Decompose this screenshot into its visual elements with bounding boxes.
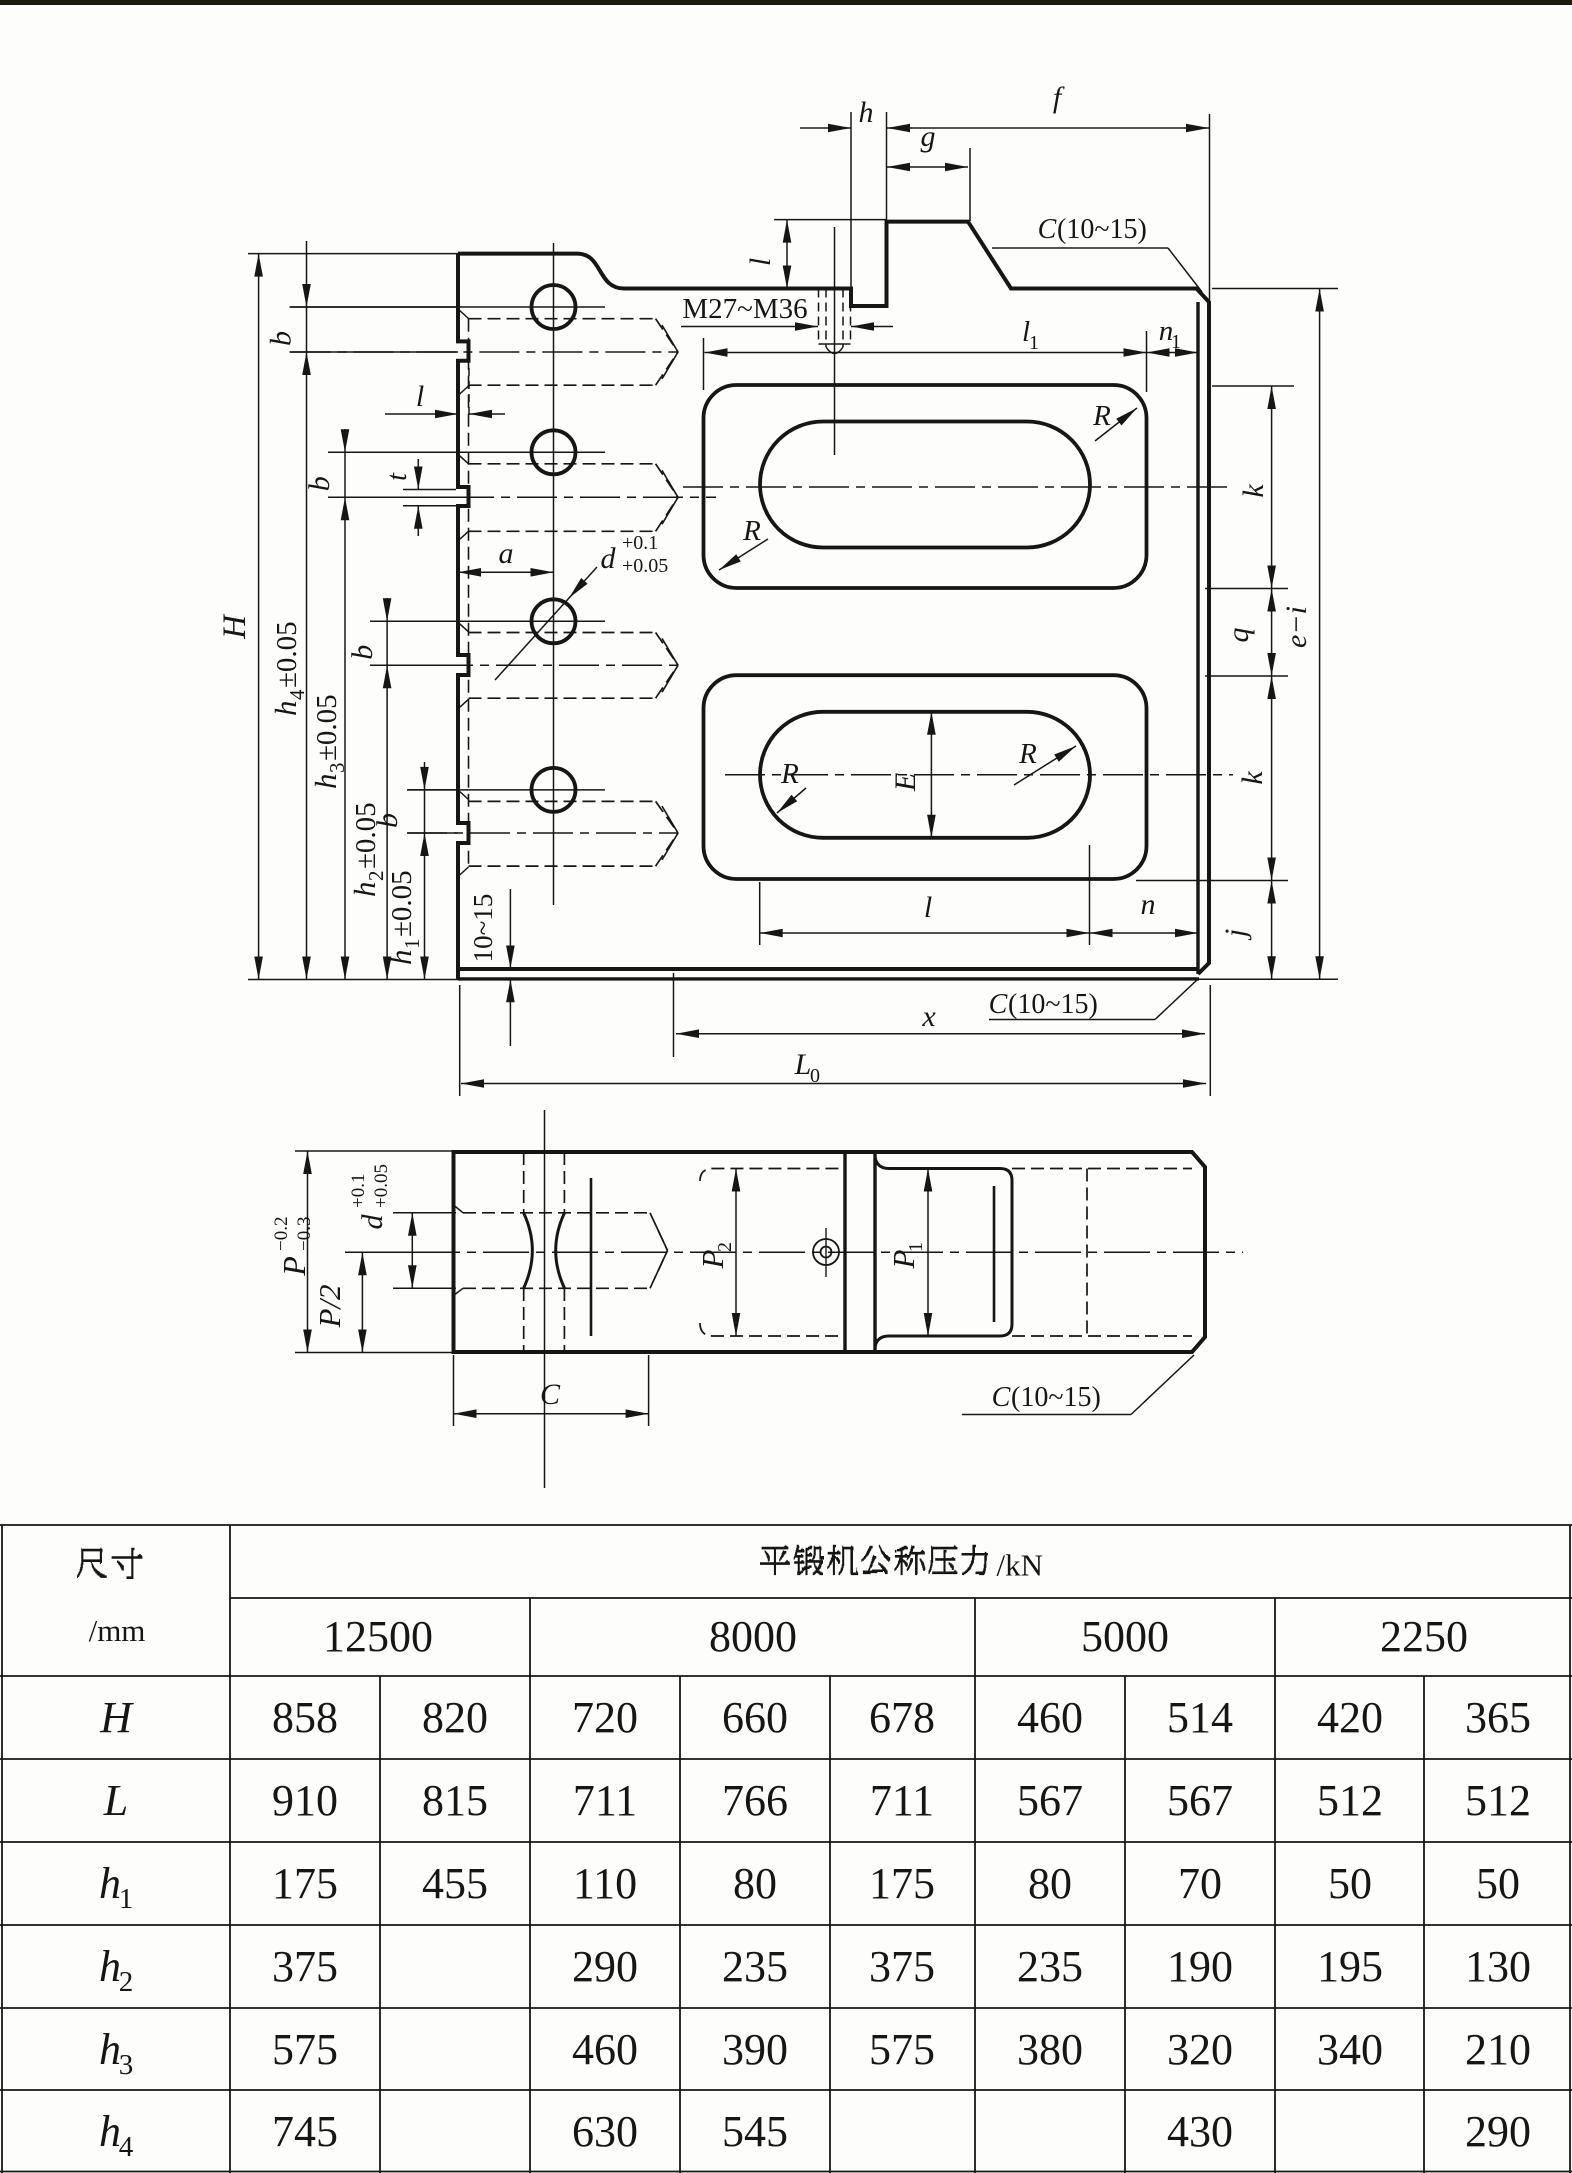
svg-text:175: 175: [272, 1859, 338, 1908]
svg-text:545: 545: [722, 2107, 788, 2156]
svg-text:k: k: [1236, 771, 1269, 785]
svg-text:C: C: [540, 1378, 561, 1411]
svg-text:R: R: [780, 758, 799, 790]
svg-text:50: 50: [1328, 1859, 1372, 1908]
svg-text:380: 380: [1017, 2025, 1083, 2074]
svg-text:R: R: [1018, 738, 1037, 770]
svg-text:711: 711: [573, 1776, 637, 1825]
svg-text:a: a: [499, 537, 514, 570]
svg-text:567: 567: [1167, 1776, 1233, 1825]
svg-text:190: 190: [1167, 1942, 1233, 1991]
svg-text:10~15: 10~15: [468, 894, 498, 963]
svg-text:80: 80: [1028, 1859, 1072, 1908]
svg-text:720: 720: [572, 1693, 638, 1742]
svg-text:/kN: /kN: [997, 1548, 1044, 1583]
svg-text:+0.1: +0.1: [622, 532, 658, 554]
svg-text:4: 4: [119, 2131, 134, 2163]
svg-text:±0.05: ±0.05: [271, 621, 303, 688]
svg-text:175: 175: [869, 1859, 935, 1908]
svg-text:C: C: [1038, 214, 1057, 245]
svg-text:455: 455: [422, 1859, 488, 1908]
svg-text:1: 1: [119, 1883, 134, 1915]
svg-text:x: x: [921, 1000, 936, 1033]
svg-text:h: h: [99, 1942, 121, 1991]
svg-text:h: h: [99, 2107, 121, 2156]
svg-text:575: 575: [869, 2025, 935, 2074]
svg-text:(10~15): (10~15): [1057, 214, 1147, 245]
svg-text:512: 512: [1465, 1776, 1531, 1825]
svg-text:290: 290: [572, 1942, 638, 1991]
svg-text:3: 3: [325, 763, 349, 774]
svg-text:d: d: [601, 542, 617, 575]
svg-text:80: 80: [733, 1859, 777, 1908]
svg-text:h: h: [308, 774, 343, 790]
svg-text:l: l: [744, 258, 777, 266]
svg-text:4: 4: [285, 689, 309, 700]
svg-text:1: 1: [1171, 331, 1181, 353]
svg-text:L: L: [794, 1048, 812, 1081]
svg-text:420: 420: [1317, 1693, 1383, 1742]
svg-text:375: 375: [869, 1942, 935, 1991]
svg-text:n: n: [1141, 888, 1156, 921]
svg-text:(10~15): (10~15): [1011, 1382, 1101, 1413]
svg-text:/mm: /mm: [89, 1613, 146, 1648]
svg-text:R: R: [742, 515, 761, 547]
svg-text:P: P: [276, 1256, 312, 1277]
svg-text:l: l: [416, 380, 424, 413]
svg-text:50: 50: [1476, 1859, 1520, 1908]
svg-text:q: q: [1222, 628, 1255, 643]
svg-text:±0.05: ±0.05: [386, 870, 418, 937]
svg-text:e−i: e−i: [1280, 606, 1313, 648]
svg-text:12500: 12500: [323, 1612, 433, 1661]
svg-text:t: t: [382, 472, 413, 481]
svg-text:130: 130: [1465, 1942, 1531, 1991]
svg-text:+0.05: +0.05: [622, 555, 668, 577]
svg-text:−0.3: −0.3: [294, 1217, 315, 1251]
svg-text:678: 678: [869, 1693, 935, 1742]
svg-text:±0.05: ±0.05: [311, 694, 343, 761]
svg-text:745: 745: [272, 2107, 338, 2156]
svg-text:365: 365: [1465, 1693, 1531, 1742]
svg-text:567: 567: [1017, 1776, 1083, 1825]
svg-text:1: 1: [400, 939, 424, 950]
svg-text:b: b: [346, 645, 379, 660]
svg-text:H: H: [217, 613, 253, 640]
svg-text:0: 0: [810, 1065, 820, 1087]
svg-text:(10~15): (10~15): [1008, 989, 1098, 1020]
svg-text:910: 910: [272, 1776, 338, 1825]
svg-text:H: H: [99, 1693, 134, 1742]
svg-text:l: l: [924, 891, 932, 924]
svg-text:320: 320: [1167, 2025, 1233, 2074]
svg-text:290: 290: [1465, 2107, 1531, 2156]
svg-text:h: h: [99, 1859, 121, 1908]
svg-text:575: 575: [272, 2025, 338, 2074]
svg-text:210: 210: [1465, 2025, 1531, 2074]
svg-text:858: 858: [272, 1693, 338, 1742]
svg-text:E: E: [889, 773, 922, 792]
svg-text:375: 375: [272, 1942, 338, 1991]
svg-text:C: C: [989, 989, 1008, 1020]
svg-text:2: 2: [119, 1966, 134, 1998]
svg-text:g: g: [921, 120, 936, 153]
svg-text:P/2: P/2: [312, 1284, 347, 1328]
svg-text:b: b: [303, 476, 336, 491]
svg-text:L: L: [103, 1776, 128, 1825]
svg-text:2250: 2250: [1380, 1612, 1468, 1661]
svg-text:815: 815: [422, 1776, 488, 1825]
svg-text:+0.1: +0.1: [348, 1174, 369, 1208]
svg-text:235: 235: [722, 1942, 788, 1991]
svg-text:711: 711: [870, 1776, 934, 1825]
svg-text:195: 195: [1317, 1942, 1383, 1991]
svg-text:514: 514: [1167, 1693, 1233, 1742]
svg-text:1: 1: [905, 1242, 927, 1252]
svg-text:R: R: [1092, 400, 1111, 432]
svg-text:d: d: [356, 1214, 389, 1230]
svg-text:h: h: [99, 2025, 121, 2074]
svg-text:−0.2: −0.2: [271, 1217, 292, 1251]
svg-text:h: h: [383, 950, 418, 966]
svg-text:8000: 8000: [709, 1612, 797, 1661]
svg-text:h: h: [859, 96, 874, 129]
svg-text:630: 630: [572, 2107, 638, 2156]
svg-text:h: h: [268, 701, 303, 717]
svg-text:460: 460: [572, 2025, 638, 2074]
svg-text:2: 2: [714, 1242, 736, 1252]
svg-text:766: 766: [722, 1776, 788, 1825]
svg-text:k: k: [1237, 484, 1270, 498]
svg-text:3: 3: [119, 2049, 134, 2081]
svg-text:660: 660: [722, 1693, 788, 1742]
svg-text:2: 2: [364, 871, 388, 882]
svg-text:430: 430: [1167, 2107, 1233, 2156]
svg-text:1: 1: [1029, 332, 1039, 354]
svg-text:±0.05: ±0.05: [350, 802, 382, 869]
svg-text:235: 235: [1017, 1942, 1083, 1991]
svg-text:70: 70: [1178, 1859, 1222, 1908]
svg-text:h: h: [347, 882, 382, 898]
svg-text:C: C: [992, 1382, 1011, 1413]
svg-text:+0.05: +0.05: [371, 1164, 392, 1208]
svg-text:M27~M36: M27~M36: [682, 293, 807, 325]
svg-text:390: 390: [722, 2025, 788, 2074]
svg-text:f: f: [1053, 81, 1065, 114]
svg-text:460: 460: [1017, 1693, 1083, 1742]
svg-text:340: 340: [1317, 2025, 1383, 2074]
svg-text:820: 820: [422, 1693, 488, 1742]
svg-text:b: b: [265, 331, 298, 346]
svg-text:110: 110: [573, 1859, 637, 1908]
svg-text:j: j: [1219, 929, 1252, 941]
svg-text:5000: 5000: [1081, 1612, 1169, 1661]
svg-text:512: 512: [1317, 1776, 1383, 1825]
